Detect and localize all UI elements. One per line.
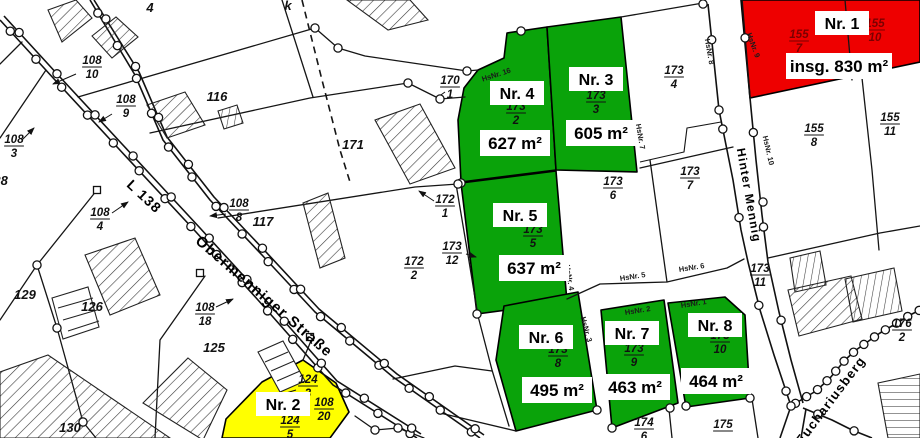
lot-3-label[interactable]: Nr. 3 xyxy=(569,67,623,91)
parcel-number-label-shape: 8 xyxy=(236,212,243,224)
parcel-number-label-shape: 8 xyxy=(811,137,818,149)
building xyxy=(92,17,138,58)
parcel-number-label-shape: 124 xyxy=(298,374,318,386)
building xyxy=(878,374,920,438)
boundary-point xyxy=(154,113,162,121)
parcel-number-label-shape: 1 xyxy=(447,89,453,101)
lot-5-area-text: 637 m² xyxy=(507,259,561,278)
boundary-point xyxy=(850,427,858,435)
lot-6-polygon[interactable] xyxy=(496,292,597,431)
boundary-point xyxy=(380,359,388,367)
parcel-boundaries-shape xyxy=(218,184,458,218)
boundary-point xyxy=(188,173,196,181)
boundary-point xyxy=(735,213,743,221)
parcel-number-label-shape: 108 xyxy=(82,55,102,67)
parcel-number-label-shape: 175 xyxy=(713,419,733,431)
parcel-number-label: 128 xyxy=(0,173,9,188)
boundary-point xyxy=(715,106,723,114)
boundary-point xyxy=(212,202,220,210)
house-number-label: HsNr. 5 xyxy=(619,270,646,283)
lot-1-area-text: insg. 830 m² xyxy=(790,57,889,76)
lot-6-name: Nr. 6 xyxy=(529,330,564,347)
boundary-point xyxy=(131,62,139,70)
lot-7-label[interactable]: Nr. 7 xyxy=(605,321,659,345)
lot-5-name: Nr. 5 xyxy=(503,208,538,225)
parcel-number-label-shape: 1 xyxy=(442,208,448,220)
boundary-point xyxy=(777,316,785,324)
lot-4-name: Nr. 4 xyxy=(500,86,535,103)
boundary-point xyxy=(113,42,121,50)
parcel-boundaries-shape xyxy=(567,259,744,299)
junction-point xyxy=(197,270,204,277)
house-number-label-shape: HsNr. 10 xyxy=(761,135,777,166)
lot-4-area: 627 m² xyxy=(480,130,550,156)
parcel-number-label-shape: 173 xyxy=(586,90,606,102)
lot-7-name: Nr. 7 xyxy=(615,326,650,343)
lot-6-area-text: 495 m² xyxy=(530,381,584,400)
lot-1-name: Nr. 1 xyxy=(825,16,860,33)
boundary-point xyxy=(58,83,66,91)
parcel-boundaries-shape xyxy=(0,70,46,138)
parcel-number-label-shape: 155 xyxy=(789,29,809,41)
boundary-point xyxy=(132,74,140,82)
building xyxy=(218,105,243,129)
boundary-point xyxy=(316,313,324,321)
boundary-point xyxy=(220,203,228,211)
parcel-number-label-shape: 10 xyxy=(86,69,99,81)
lot-5-area: 637 m² xyxy=(499,255,569,281)
lot-8-area-text: 464 m² xyxy=(689,372,743,391)
boundary-point xyxy=(371,426,379,434)
parcel-number-label: 17312 xyxy=(442,241,462,267)
house-number-label: HsNr. 6 xyxy=(678,261,705,274)
boundary-point xyxy=(187,222,195,230)
boundary-point xyxy=(360,394,368,402)
parcel-number-label: 10818 xyxy=(195,302,215,328)
boundary-point xyxy=(517,27,525,35)
parcel-number-label: 130 xyxy=(59,420,81,435)
boundary-point xyxy=(337,323,345,331)
parcel-number-label: 10810 xyxy=(82,55,102,81)
parcel-number-label-shape: 10 xyxy=(714,344,727,356)
building xyxy=(845,268,902,322)
house-number-label-shape: HsNr. 6 xyxy=(678,261,705,274)
boundary-point xyxy=(32,55,40,63)
parcel-number-label-shape: 173 xyxy=(442,241,462,253)
label-leader xyxy=(99,114,112,122)
parcel-number-label: 1088 xyxy=(229,198,249,224)
boundary-point xyxy=(813,386,821,394)
boundary-point xyxy=(454,180,462,188)
boundary-point xyxy=(463,67,471,75)
parcel-number-label: 126 xyxy=(81,299,103,314)
boundary-point xyxy=(436,95,444,103)
boundary-point xyxy=(6,27,14,35)
parcel-number-label-shape: 174 xyxy=(634,417,654,429)
parcel-number-label-shape: 9 xyxy=(631,357,638,369)
parcel-number-label-shape: 12 xyxy=(446,255,459,267)
parcel-number-label-shape: 2 xyxy=(410,270,418,282)
parcel-number-label-shape: 7 xyxy=(687,180,694,192)
parcel-number-label-shape: 155 xyxy=(880,112,900,124)
parcel-boundaries-shape xyxy=(862,78,879,250)
street-label-l138: L 138 xyxy=(124,176,165,216)
boundary-point xyxy=(374,409,382,417)
boundary-point xyxy=(342,389,350,397)
boundary-point xyxy=(436,406,444,414)
boundary-point xyxy=(608,424,616,432)
lot-3-area-text: 605 m² xyxy=(574,124,628,143)
boundary-point xyxy=(803,393,811,401)
boundary-point xyxy=(135,167,143,175)
parcel-boundaries-shape xyxy=(393,366,492,379)
cadastral-map: 1081010891083108410881081810820124312451… xyxy=(0,0,920,438)
parcel-number-label-shape: 9 xyxy=(123,108,130,120)
boundary-point xyxy=(408,424,416,432)
parcel-number-label-shape: 108 xyxy=(195,302,215,314)
boundary-point xyxy=(91,111,99,119)
boundary-point xyxy=(425,393,433,401)
boundary-point xyxy=(881,326,889,334)
parcel-number-label-shape: 124 xyxy=(280,415,300,427)
boundary-point xyxy=(759,198,767,206)
parcel-number-label: 125 xyxy=(203,340,225,355)
lot-5-polygon[interactable] xyxy=(461,171,567,314)
parcel-number-label-shape: 3 xyxy=(11,148,18,160)
boundary-point xyxy=(915,306,920,314)
building xyxy=(375,104,455,184)
parcel-number-label-shape: 20 xyxy=(317,411,331,423)
boundary-point xyxy=(311,24,319,32)
parcel-number-label-shape: 18 xyxy=(199,316,212,328)
parcel-number-label-shape: 176 xyxy=(892,318,912,330)
boundary-point xyxy=(471,425,479,433)
boundary-point xyxy=(699,0,707,8)
boundary-point xyxy=(666,404,674,412)
parcel-boundaries-shape xyxy=(282,0,313,97)
building xyxy=(48,0,92,42)
label-leader xyxy=(216,299,233,307)
parcel-number-label: 1736 xyxy=(603,176,623,202)
boundary-point xyxy=(102,15,110,23)
lot-6-label[interactable]: Nr. 6 xyxy=(519,325,573,349)
lot-1-label[interactable]: Nr. 1 xyxy=(815,11,869,35)
parcel-number-label-shape: 4 xyxy=(96,221,104,233)
building xyxy=(347,0,428,30)
parcel-boundaries-shape xyxy=(752,399,758,438)
boundary-point xyxy=(94,9,102,17)
boundary-point xyxy=(164,143,172,151)
boundary-point xyxy=(53,70,61,78)
lot-2-label[interactable]: Nr. 2 xyxy=(256,392,310,416)
boundary-point xyxy=(405,384,413,392)
parcel-boundaries-shape xyxy=(768,226,920,258)
parcel-number-label-shape: 108 xyxy=(4,134,24,146)
lot-7-area: 463 m² xyxy=(600,374,670,400)
parcel-boundaries-shape xyxy=(650,160,667,282)
parcel-number-label: 171 xyxy=(342,137,364,152)
boundary-point xyxy=(787,402,795,410)
boundary-point xyxy=(346,337,354,345)
parcel-number-label: k xyxy=(284,0,292,13)
parcel-number-label-shape: 173 xyxy=(750,263,770,275)
parcel-number-label: 129 xyxy=(14,287,36,302)
parcel-number-label: 1083 xyxy=(4,134,24,160)
building xyxy=(303,193,345,268)
parcel-number-label-shape: 108 xyxy=(314,397,334,409)
parcel-number-label: 1737 xyxy=(680,166,700,192)
parcel-number-label-shape: 172 xyxy=(435,194,455,206)
boundary-point xyxy=(746,394,754,402)
boundary-point xyxy=(823,377,831,385)
lot-6-area: 495 m² xyxy=(522,377,592,403)
boundary-point xyxy=(832,367,840,375)
parcel-number-label: 1734 xyxy=(664,65,684,91)
parcel-boundaries-shape xyxy=(669,409,672,438)
parcel-number-label-shape: 6 xyxy=(641,431,648,438)
parcel-number-label-shape: 2 xyxy=(512,115,520,127)
label-leader xyxy=(419,191,434,201)
lot-4-area-text: 627 m² xyxy=(488,134,542,153)
lot-2-name: Nr. 2 xyxy=(266,397,301,414)
parcel-number-label: 1746 xyxy=(634,417,654,438)
parcel-number-label: 116 xyxy=(207,89,228,104)
parcel-number-label: 15511 xyxy=(880,112,900,138)
boundary-point xyxy=(258,244,266,252)
parcel-number-label: 1721 xyxy=(435,194,455,220)
boundary-point xyxy=(53,324,61,332)
boundary-point xyxy=(473,310,481,318)
boundary-point xyxy=(394,424,402,432)
boundary-point xyxy=(317,359,325,367)
boundary-point xyxy=(297,285,305,293)
junction-point xyxy=(94,187,101,194)
parcel-number-label: 17311 xyxy=(750,263,770,289)
parcel-number-label: 1089 xyxy=(116,94,136,120)
boundary-point xyxy=(167,193,175,201)
parcel-number-label-shape: 155 xyxy=(804,123,824,135)
parcel-number-label-shape: 4 xyxy=(670,79,678,91)
boundary-point xyxy=(404,79,412,87)
parcel-number-label-shape: 10 xyxy=(869,32,882,44)
label-leader xyxy=(112,202,128,213)
lot-3-name: Nr. 3 xyxy=(579,72,614,89)
boundary-point xyxy=(264,258,272,266)
boundary-point xyxy=(184,160,192,168)
boundary-point xyxy=(860,340,868,348)
boundary-point xyxy=(15,28,23,36)
lot-4-label[interactable]: Nr. 4 xyxy=(490,81,544,105)
parcel-number-label-shape: 173 xyxy=(680,166,700,178)
house-number-label: HsNr. 10 xyxy=(761,135,777,166)
boundary-point xyxy=(719,125,727,133)
parcel-number-label: 1084 xyxy=(90,207,110,233)
lot-8-name: Nr. 8 xyxy=(698,318,733,335)
boundary-point xyxy=(749,128,757,136)
boundary-point xyxy=(33,261,41,269)
boundary-point xyxy=(238,230,246,238)
boundary-point xyxy=(289,335,297,343)
boundary-point xyxy=(593,406,601,414)
roads-shape xyxy=(780,406,791,438)
parcel-number-label: 1762 xyxy=(892,318,912,344)
parcel-number-label-shape: 172 xyxy=(404,256,424,268)
parcel-boundaries-shape xyxy=(640,147,733,168)
parcel-number-label-shape: 108 xyxy=(229,198,249,210)
parcel-boundaries-shape xyxy=(640,122,721,162)
parcel-number-label: 175 xyxy=(713,419,733,431)
parcel-number-label-shape: 5 xyxy=(530,238,537,250)
parcel-number-label-shape: 173 xyxy=(664,65,684,77)
parcel-number-label-shape: 173 xyxy=(603,176,623,188)
parcel-boundaries-shape xyxy=(621,3,703,17)
boundary-point xyxy=(870,333,878,341)
parcel-number-label-shape: 3 xyxy=(593,104,600,116)
parcel-number-label-shape: 2 xyxy=(898,332,906,344)
parcel-number-label-shape: 8 xyxy=(555,358,562,370)
lot-8-area: 464 m² xyxy=(681,368,751,394)
boundary-point xyxy=(782,387,790,395)
parcel-number-label: 1722 xyxy=(404,256,424,282)
lot-3-area: 605 m² xyxy=(566,120,636,146)
parcel-number-label-shape: 6 xyxy=(610,190,617,202)
boundary-point xyxy=(840,357,848,365)
parcel-number-label: 1558 xyxy=(804,123,824,149)
cadastral-map-page: 1081010891083108410881081810820124312451… xyxy=(0,0,920,438)
parcel-number-label: 117 xyxy=(253,214,274,229)
lot-5-label[interactable]: Nr. 5 xyxy=(493,203,547,227)
boundary-point xyxy=(682,402,690,410)
lot-7-area-text: 463 m² xyxy=(608,378,662,397)
house-number-label-shape: HsNr. 5 xyxy=(619,270,646,283)
parcel-number-label: 4 xyxy=(145,0,154,15)
boundary-point xyxy=(755,301,763,309)
parcel-number-label-shape: 108 xyxy=(90,207,110,219)
parcel-number-label-shape: 108 xyxy=(116,94,136,106)
lot-1-area: insg. 830 m² xyxy=(786,53,892,79)
dashed-boundary xyxy=(302,0,350,182)
parcel-number-label-shape: 5 xyxy=(287,429,294,438)
boundary-point xyxy=(334,44,342,52)
label-leader xyxy=(22,128,34,140)
parcel-number-label-shape: 11 xyxy=(884,126,896,138)
boundary-point xyxy=(109,139,117,147)
parcel-number-label-shape: 170 xyxy=(440,75,460,87)
parcel-boundaries-shape xyxy=(0,42,22,64)
boundary-point xyxy=(129,152,137,160)
parcel-number-label-shape: 11 xyxy=(754,277,766,289)
lot-8-label[interactable]: Nr. 8 xyxy=(688,313,742,337)
